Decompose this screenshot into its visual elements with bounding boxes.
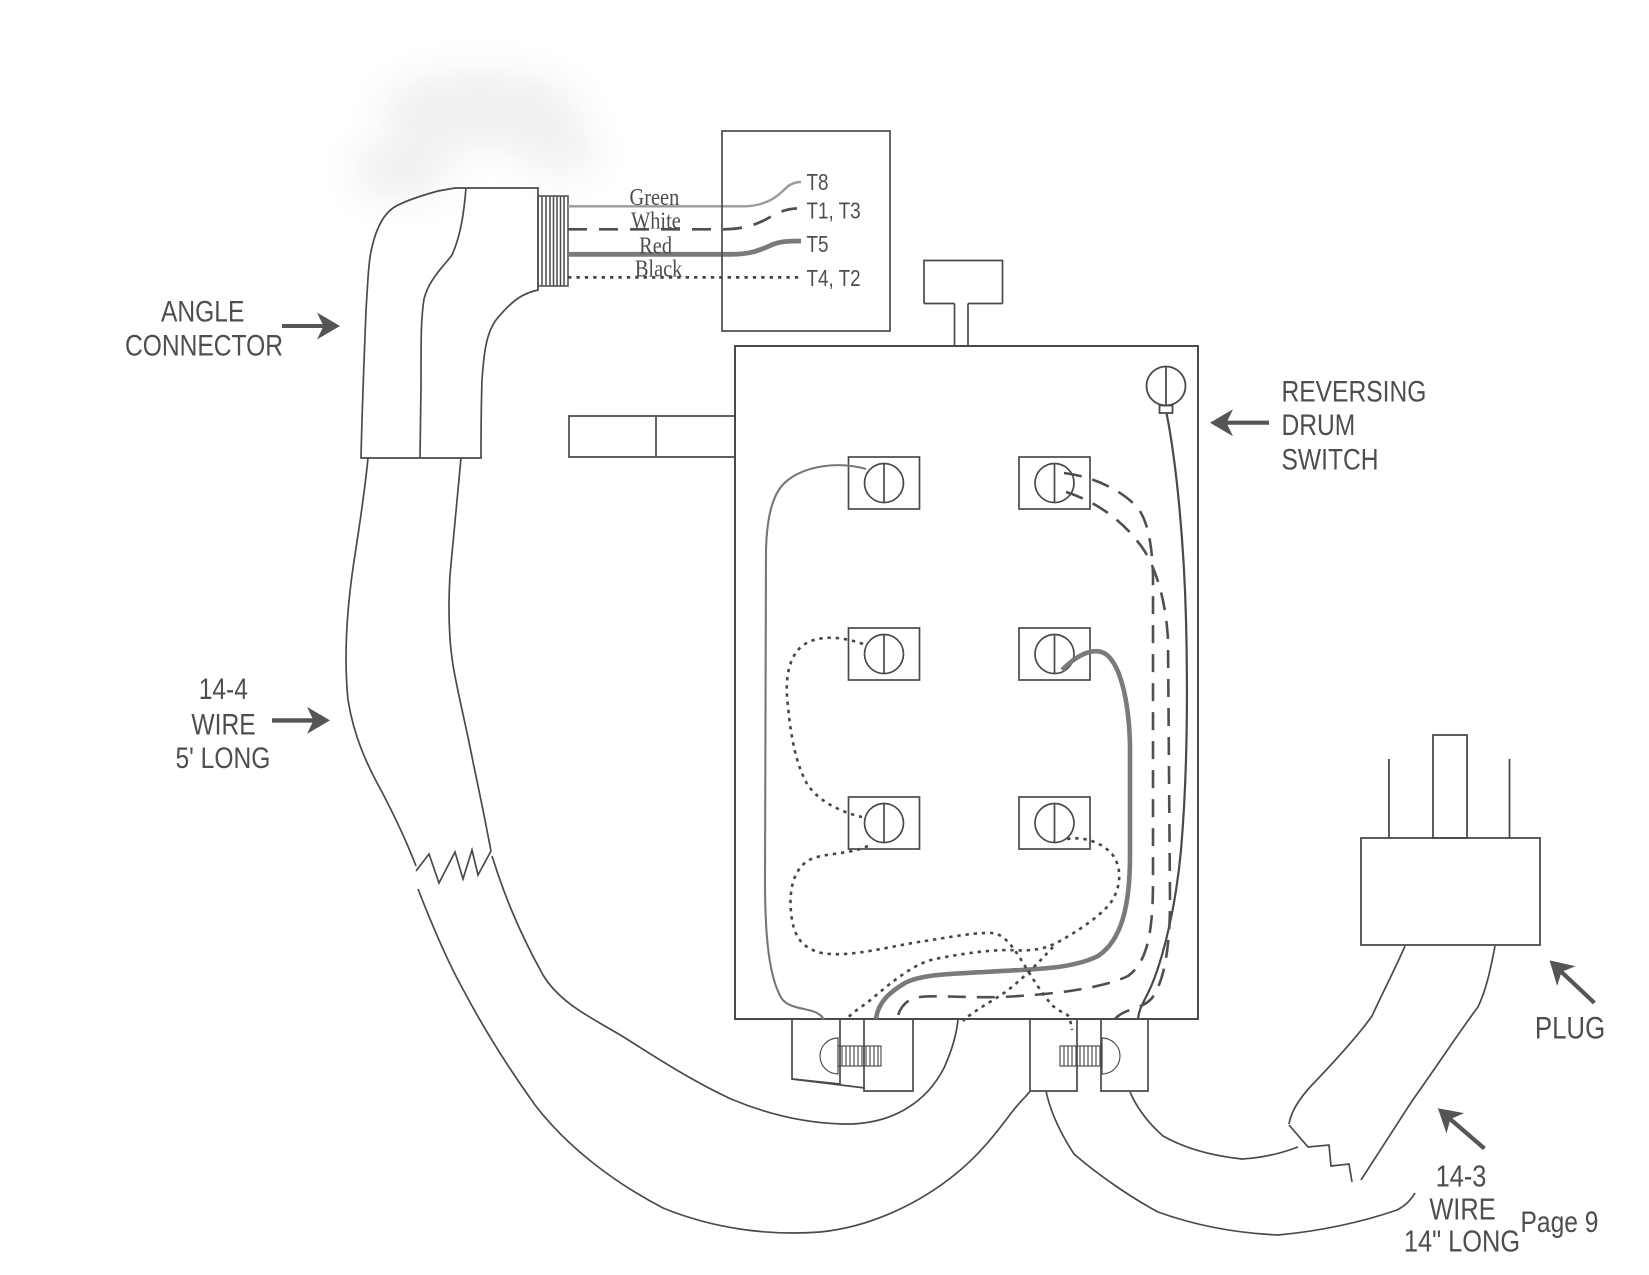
svg-text:Page 9: Page 9 (1521, 1205, 1599, 1239)
svg-text:DRUM: DRUM (1282, 408, 1356, 442)
svg-text:T5: T5 (807, 232, 829, 257)
svg-text:WIRE: WIRE (1429, 1192, 1495, 1227)
svg-text:T4, T2: T4, T2 (807, 266, 861, 291)
svg-text:CONNECTOR: CONNECTOR (125, 328, 283, 362)
svg-text:PLUG: PLUG (1535, 1011, 1605, 1046)
svg-text:REVERSING: REVERSING (1282, 374, 1427, 408)
svg-text:5' LONG: 5' LONG (175, 741, 270, 775)
svg-text:T8: T8 (807, 170, 829, 195)
svg-text:Black: Black (635, 255, 683, 282)
svg-text:WIRE: WIRE (191, 707, 255, 741)
svg-text:T1, T3: T1, T3 (807, 199, 861, 224)
svg-text:White: White (631, 207, 681, 234)
svg-text:14-3: 14-3 (1436, 1159, 1487, 1194)
svg-text:ANGLE: ANGLE (161, 294, 244, 328)
svg-text:14-4: 14-4 (199, 672, 248, 706)
svg-text:SWITCH: SWITCH (1282, 442, 1379, 476)
svg-text:14" LONG: 14" LONG (1404, 1224, 1520, 1259)
